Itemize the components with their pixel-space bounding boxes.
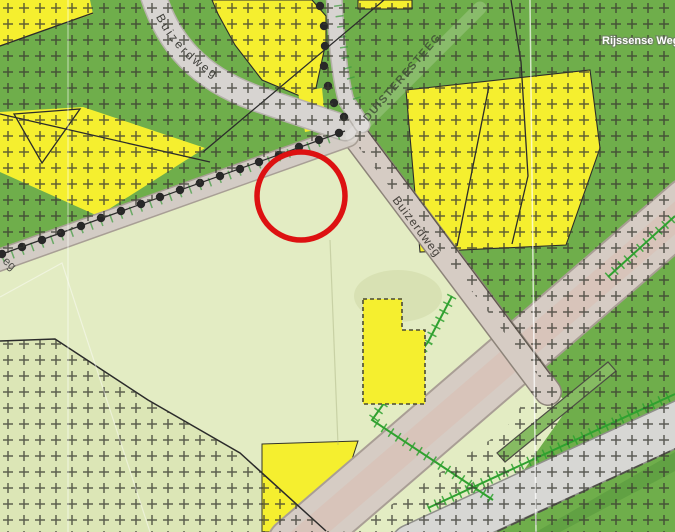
zoning-hatch-overlay: [0, 0, 675, 532]
map-viewport[interactable]: Buizerdweg DUISTERESTEEG Rijssense Weg B…: [0, 0, 675, 532]
map-canvas: Buizerdweg DUISTERESTEEG Rijssense Weg B…: [0, 0, 675, 532]
label-rijssense-weg: Rijssense Weg: [602, 35, 675, 47]
